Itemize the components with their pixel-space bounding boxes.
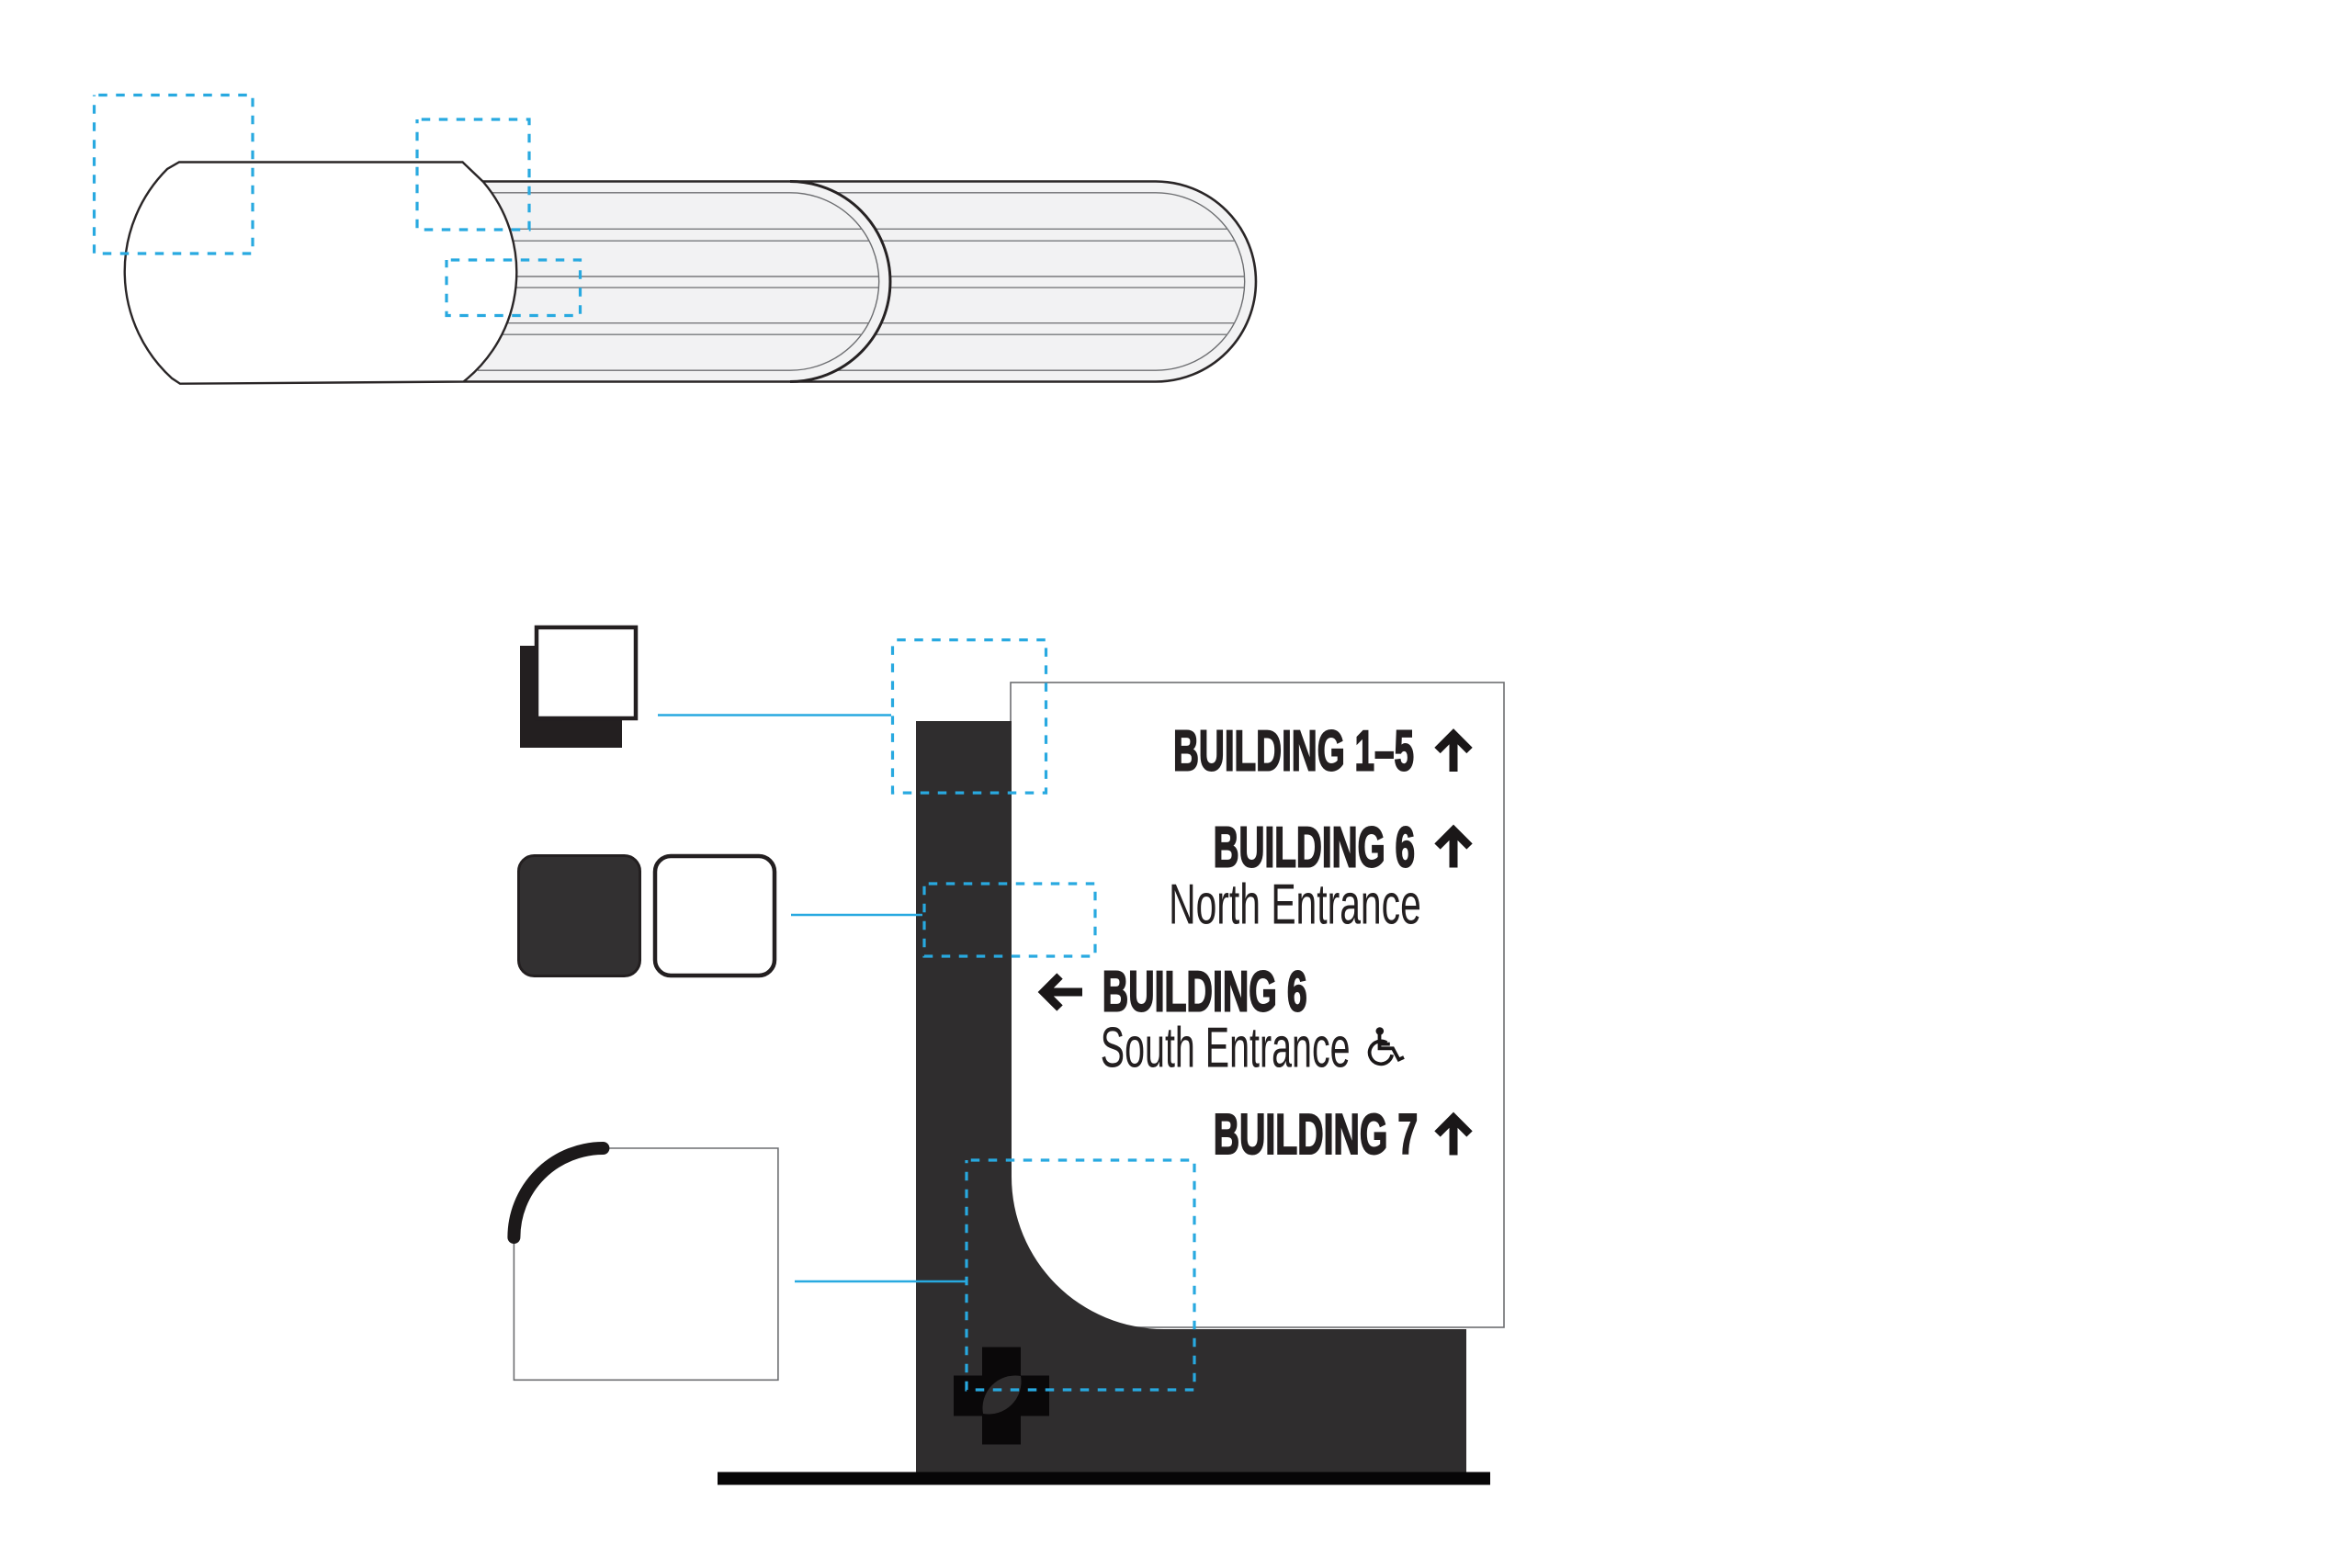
svg-text:BUILDING 6: BUILDING 6 [1214, 816, 1415, 879]
svg-text:BUILDING 7: BUILDING 7 [1214, 1103, 1419, 1167]
svg-text:North Entrance: North Entrance [1169, 873, 1421, 936]
svg-text:South Entrance: South Entrance [1101, 1016, 1351, 1079]
svg-text:BUILDING 6: BUILDING 6 [1102, 961, 1307, 1024]
svg-text:BUILDING 1–5: BUILDING 1–5 [1173, 720, 1414, 784]
